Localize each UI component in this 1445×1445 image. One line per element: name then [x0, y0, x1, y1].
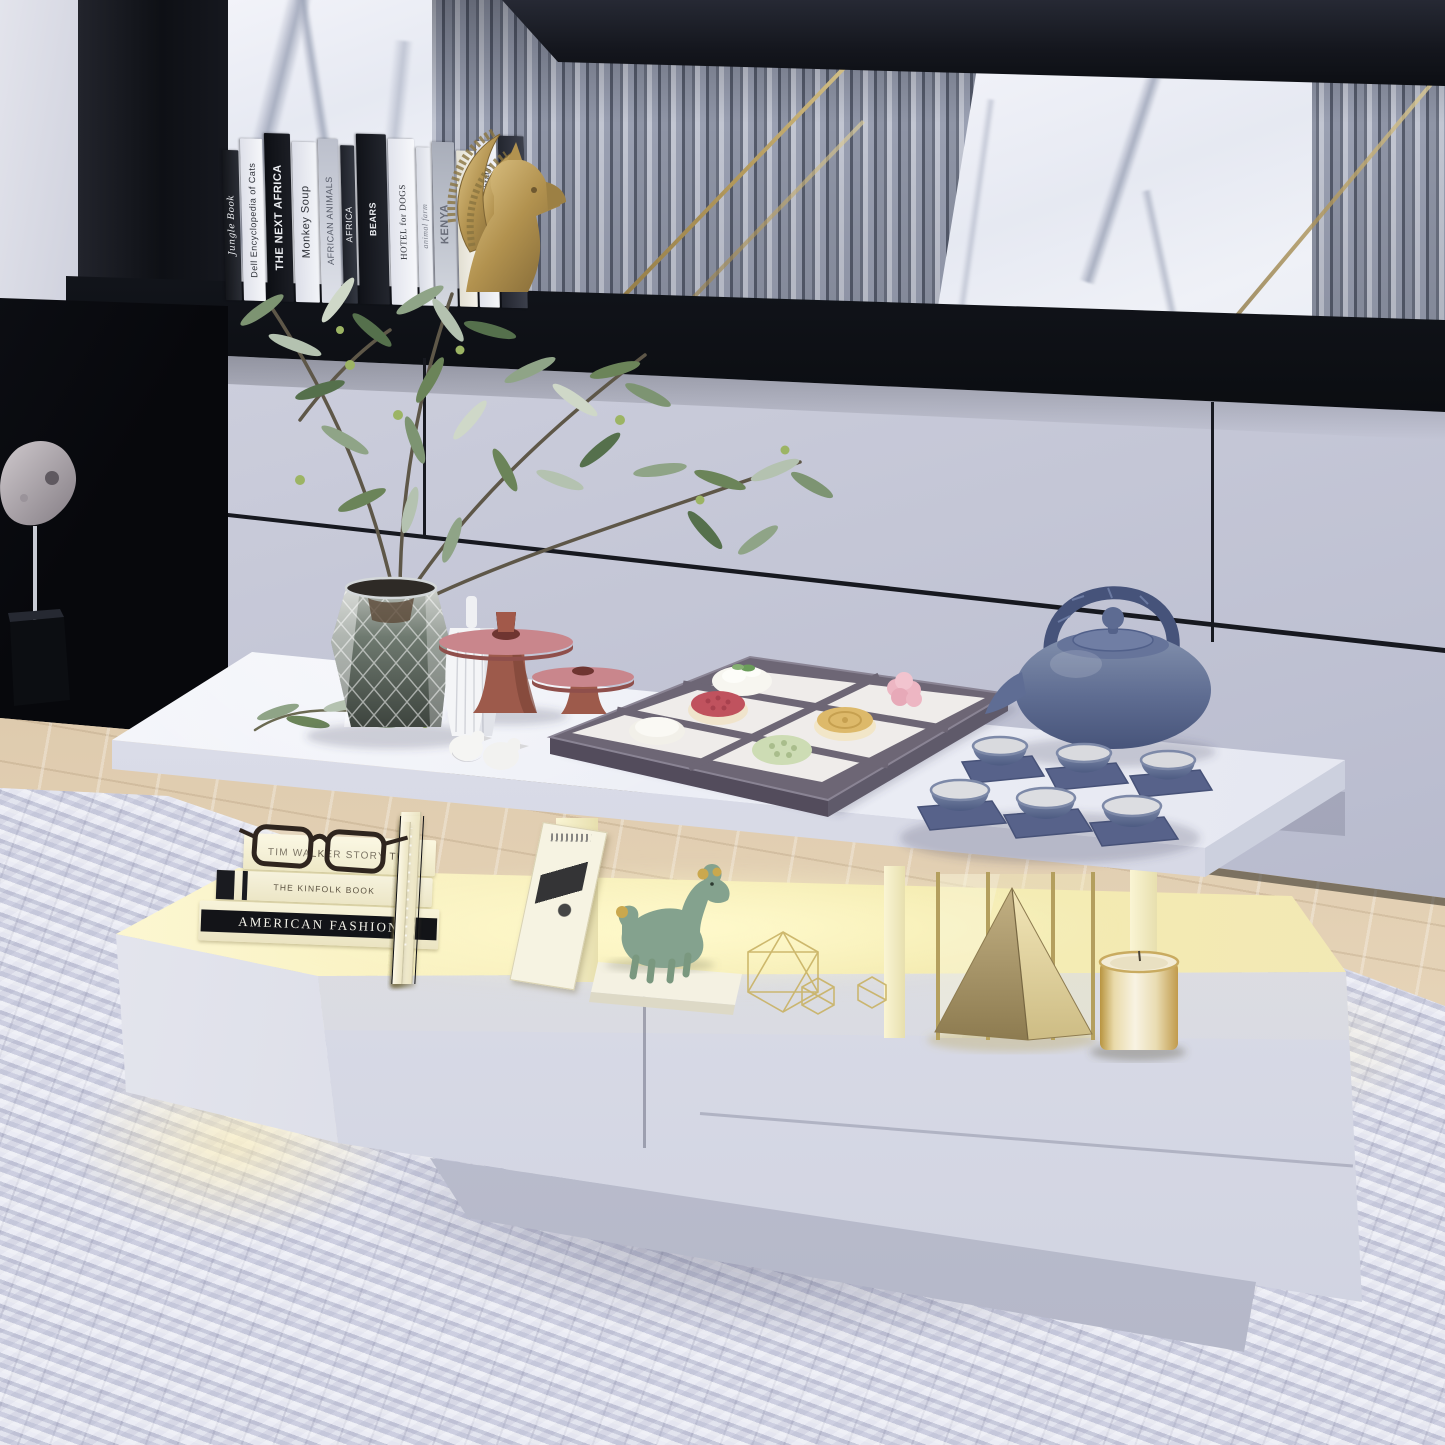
top-shelf-book-row: Jungle Book Dell Encyclopedia of Cats TH… — [221, 114, 531, 309]
book-spine: DOG — [456, 150, 478, 307]
book-spine: Jungle Book — [222, 150, 242, 301]
book-spine: animal farm — [416, 147, 434, 306]
book-spine: Monkey Soup — [292, 142, 320, 303]
wall-black-strip — [78, 0, 230, 310]
book-spine: Jungle Animals (Little Library) — [476, 141, 500, 308]
book-spine: THE NEXT AFRICA — [264, 133, 294, 302]
standing-books — [391, 806, 600, 984]
book-spine: KENYA — [432, 142, 458, 307]
book-spine: Dell Encyclopedia of Cats — [240, 138, 266, 301]
living-room-product-photo: Jungle Book Dell Encyclopedia of Cats TH… — [0, 0, 1445, 1445]
wall-white-panel — [0, 0, 80, 300]
cabinet-seam — [1211, 402, 1214, 642]
cabinet-seam — [423, 358, 426, 536]
book-spine: HOTEL for DOGS — [388, 138, 418, 305]
table-support — [884, 866, 905, 1038]
book-spine: AFRICA — [340, 145, 358, 304]
book-spine: BEARS — [356, 134, 390, 305]
book-spine: WEREWORLD — [498, 136, 528, 309]
book-spine: AFRICAN ANIMALS — [318, 139, 342, 304]
drawer-seam — [643, 986, 646, 1148]
table-support — [1130, 870, 1157, 1038]
